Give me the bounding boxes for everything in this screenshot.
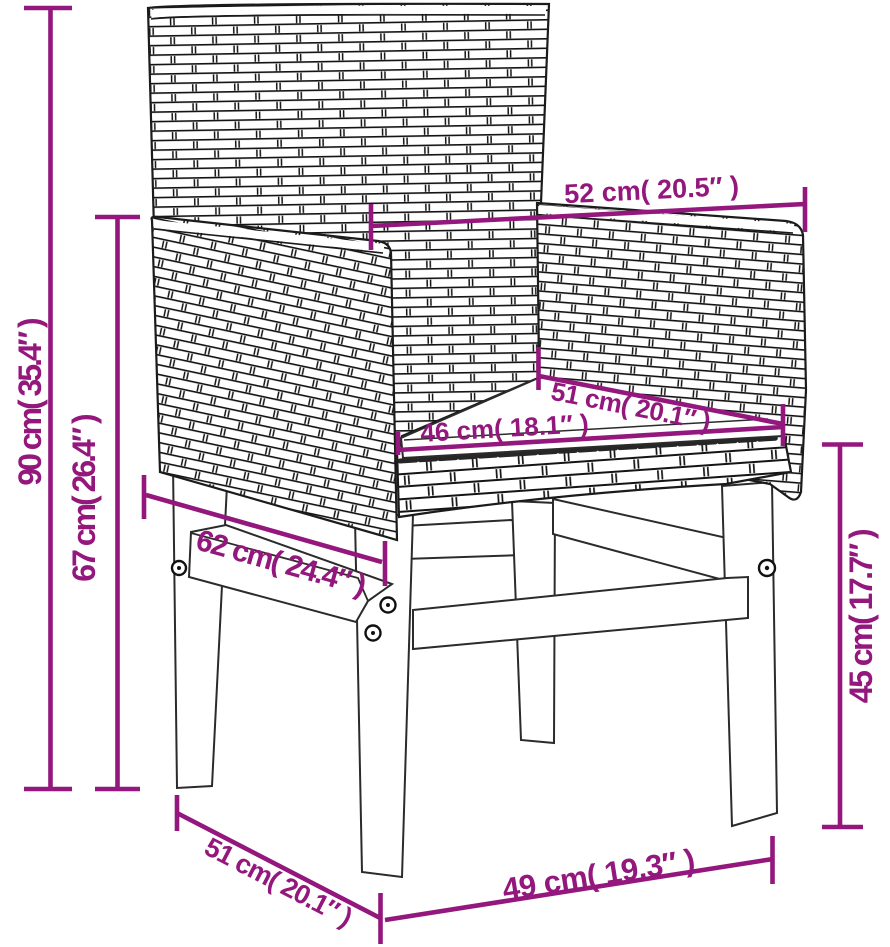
svg-text:67 cm( 26.4″ ): 67 cm( 26.4″ ): [66, 414, 102, 582]
svg-text:90 cm( 35.4″ ): 90 cm( 35.4″ ): [12, 318, 48, 486]
svg-text:45 cm( 17.7″ ): 45 cm( 17.7″ ): [843, 529, 879, 703]
